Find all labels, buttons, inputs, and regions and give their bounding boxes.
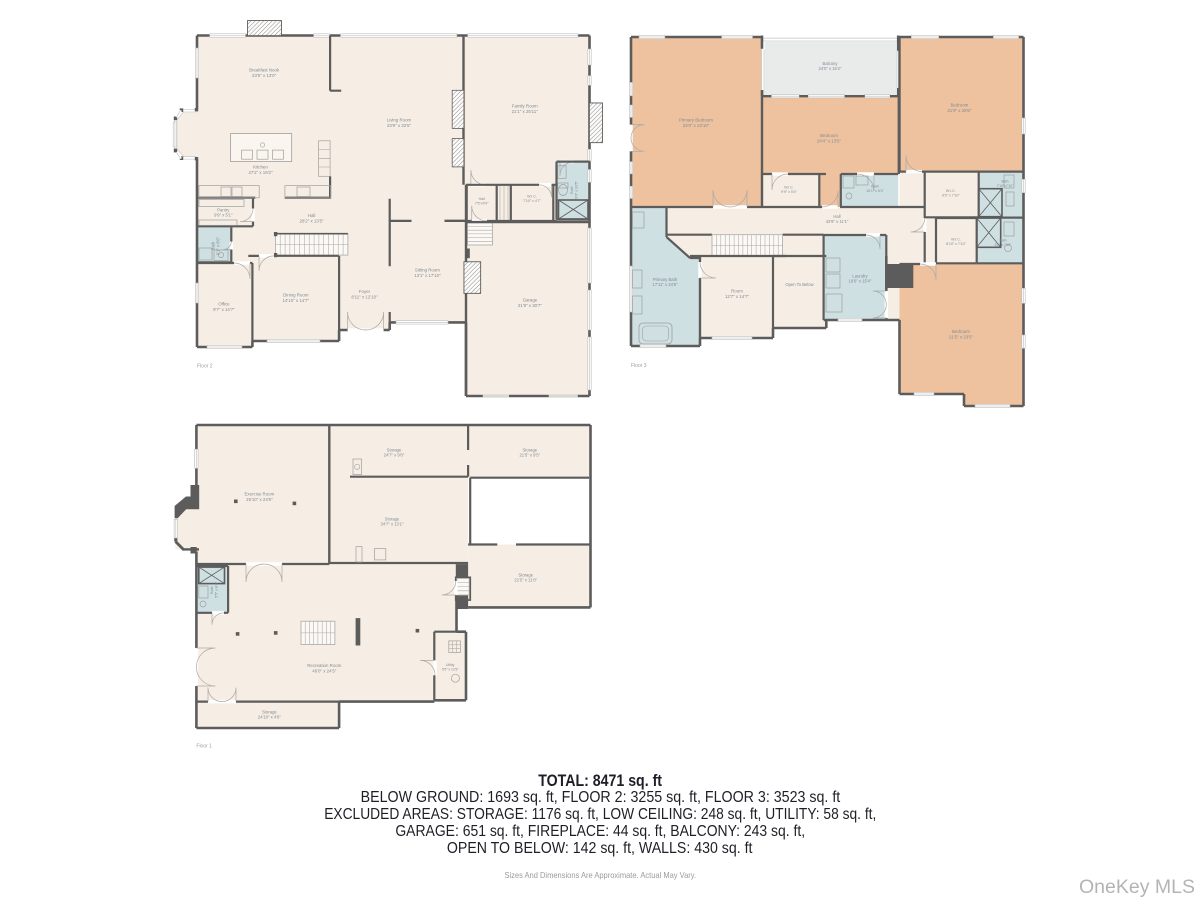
svg-text:23'9" x 32'5": 23'9" x 32'5" xyxy=(387,123,412,128)
svg-text:Floor 2: Floor 2 xyxy=(197,364,213,370)
svg-text:Living Room: Living Room xyxy=(387,118,412,123)
svg-text:7'10" x 4'7": 7'10" x 4'7" xyxy=(523,199,541,203)
svg-text:24'10" x 4'6": 24'10" x 4'6" xyxy=(258,715,281,720)
svg-text:14'10" x 14'7": 14'10" x 14'7" xyxy=(283,298,310,303)
svg-text:Exercise Room: Exercise Room xyxy=(245,492,275,497)
svg-text:27'2" x 19'2": 27'2" x 19'2" xyxy=(248,170,273,175)
svg-text:5'1" x 8'6": 5'1" x 8'6" xyxy=(216,236,221,255)
svg-text:9'9" x 5'1": 9'9" x 5'1" xyxy=(214,213,233,218)
svg-text:Garage: Garage xyxy=(523,298,538,303)
svg-text:Kitchen: Kitchen xyxy=(253,165,268,170)
svg-text:23'0" x 23'10": 23'0" x 23'10" xyxy=(683,123,710,128)
svg-text:Recreation Room: Recreation Room xyxy=(307,663,342,668)
svg-text:Family Room: Family Room xyxy=(512,104,538,109)
svg-text:21'9" x 28'6": 21'9" x 28'6" xyxy=(947,108,972,113)
svg-text:9'9" x 10'5": 9'9" x 10'5" xyxy=(575,180,579,198)
svg-text:8'2" x 7'10": 8'2" x 7'10" xyxy=(995,243,1013,247)
svg-text:10'1" x 5'4": 10'1" x 5'4" xyxy=(866,189,884,193)
svg-text:W.I.C.: W.I.C. xyxy=(951,238,961,242)
svg-text:5'5" x 8'4": 5'5" x 8'4" xyxy=(215,581,219,597)
svg-text:24'4" x 13'5": 24'4" x 13'5" xyxy=(817,138,842,143)
svg-text:21'1" x 25'11": 21'1" x 25'11" xyxy=(512,109,539,114)
svg-text:21'9" x 30'7": 21'9" x 30'7" xyxy=(518,303,543,308)
svg-text:24'0" x 15'2": 24'0" x 15'2" xyxy=(819,66,842,71)
svg-text:9'3" x 7'10": 9'3" x 7'10" xyxy=(942,194,960,198)
svg-text:24'7" x 9'0": 24'7" x 9'0" xyxy=(384,453,405,458)
svg-text:Open To Below: Open To Below xyxy=(785,282,814,287)
svg-text:Office: Office xyxy=(218,302,230,307)
svg-text:Bath: Bath xyxy=(210,586,214,593)
svg-text:Bedroom: Bedroom xyxy=(952,329,970,334)
svg-text:13'1" x 17'10": 13'1" x 17'10" xyxy=(414,273,441,278)
svg-text:28'2" x 13'5": 28'2" x 13'5" xyxy=(300,218,325,223)
svg-text:Primary Bedroom: Primary Bedroom xyxy=(679,118,714,123)
svg-text:5'5" x 12'8": 5'5" x 12'8" xyxy=(442,667,460,671)
svg-text:42'9" x 11'1": 42'9" x 11'1" xyxy=(826,219,849,224)
svg-text:7'10"x7'10": 7'10"x7'10" xyxy=(997,184,1015,188)
svg-text:Sitting Room: Sitting Room xyxy=(415,268,440,273)
svg-text:21'5" x 23'5": 21'5" x 23'5" xyxy=(949,334,974,339)
svg-text:Bedroom: Bedroom xyxy=(820,133,838,138)
svg-text:Floor 1: Floor 1 xyxy=(196,744,212,750)
svg-text:17'11" x 24'8": 17'11" x 24'8" xyxy=(653,282,678,287)
svg-text:W.I.C.: W.I.C. xyxy=(527,195,537,199)
svg-text:Hall: Hall xyxy=(308,213,316,218)
svg-text:8'11" x 12'10": 8'11" x 12'10" xyxy=(351,294,378,299)
svg-text:34'7" x 13'1": 34'7" x 13'1" xyxy=(381,522,404,527)
svg-text:26'10" x 24'6": 26'10" x 24'6" xyxy=(246,497,273,502)
svg-text:12'7" x 14'7": 12'7" x 14'7" xyxy=(725,294,750,299)
svg-text:21'5" x 11'0": 21'5" x 11'0" xyxy=(514,578,537,583)
svg-text:Breakfast Nook: Breakfast Nook xyxy=(249,68,280,73)
svg-text:16'6" x 15'4": 16'6" x 15'4" xyxy=(849,279,872,284)
svg-text:21'5" x 9'5": 21'5" x 9'5" xyxy=(519,453,540,458)
svg-text:8'10" x 7'10": 8'10" x 7'10" xyxy=(946,242,966,246)
svg-text:Bath: Bath xyxy=(570,186,574,193)
svg-text:9'9" x 5'4": 9'9" x 5'4" xyxy=(781,190,797,194)
svg-text:7'5"x4'9": 7'5"x4'9" xyxy=(475,202,489,206)
svg-text:W.I.C.: W.I.C. xyxy=(946,189,956,193)
svg-text:9'7" x 14'7": 9'7" x 14'7" xyxy=(213,307,235,312)
svg-text:46'0" x 24'5": 46'0" x 24'5" xyxy=(312,668,337,673)
svg-text:Foyer: Foyer xyxy=(359,289,371,294)
svg-text:23'5" x 13'0": 23'5" x 13'0" xyxy=(252,73,277,78)
svg-text:Dining Room: Dining Room xyxy=(283,293,309,298)
svg-text:W.I.C.: W.I.C. xyxy=(784,186,794,190)
svg-text:Floor 3: Floor 3 xyxy=(631,363,647,369)
svg-text:Room: Room xyxy=(731,289,743,294)
svg-text:Bath: Bath xyxy=(871,185,878,189)
svg-text:Hall: Hall xyxy=(479,197,485,201)
svg-text:Bedroom: Bedroom xyxy=(950,103,968,108)
